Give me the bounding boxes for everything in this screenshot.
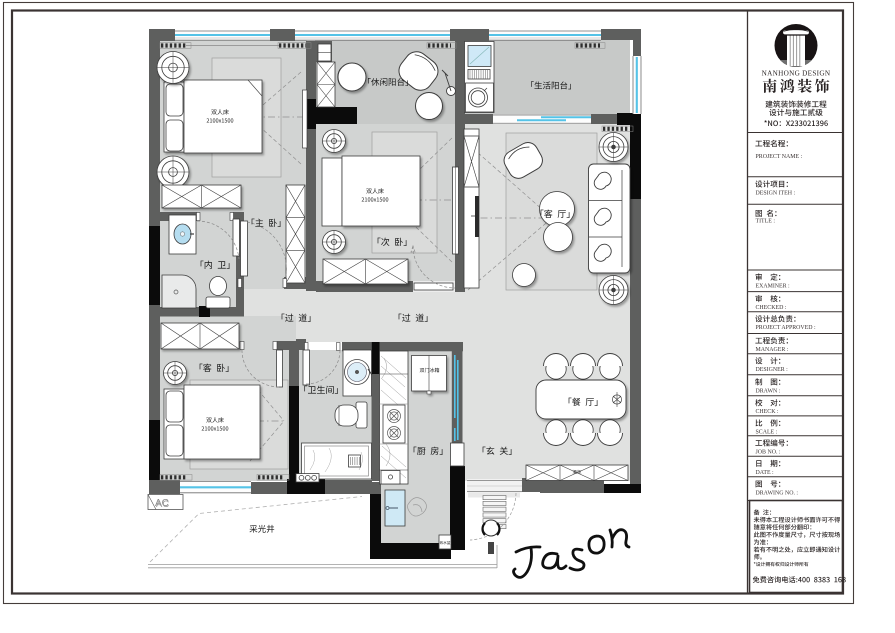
svg-text:PROJECT APPROVED :: PROJECT APPROVED : xyxy=(756,325,816,331)
svg-text:CHECKED :: CHECKED : xyxy=(756,305,787,311)
svg-text:TITLE :: TITLE : xyxy=(756,218,776,224)
svg-text:JOB NO. :: JOB NO. : xyxy=(756,449,781,455)
svg-text:PROJECT NAME :: PROJECT NAME : xyxy=(756,154,803,160)
svg-text:EXAMINER :: EXAMINER : xyxy=(756,284,791,290)
svg-text:AC: AC xyxy=(156,499,169,510)
svg-text:CHECK :: CHECK : xyxy=(756,409,779,415)
svg-text:DATE :: DATE : xyxy=(756,470,775,476)
svg-text:NANHONG DESIGN: NANHONG DESIGN xyxy=(762,70,831,78)
svg-text:DESIGNER :: DESIGNER : xyxy=(756,367,789,373)
svg-text:MANAGER :: MANAGER : xyxy=(756,347,789,353)
svg-text:DRAWN :: DRAWN : xyxy=(756,388,781,394)
svg-text:SCALE :: SCALE : xyxy=(756,429,778,435)
svg-text:DESIGN ITEH :: DESIGN ITEH : xyxy=(756,191,796,197)
svg-text:DRAWING NO. :: DRAWING NO. : xyxy=(756,490,799,496)
